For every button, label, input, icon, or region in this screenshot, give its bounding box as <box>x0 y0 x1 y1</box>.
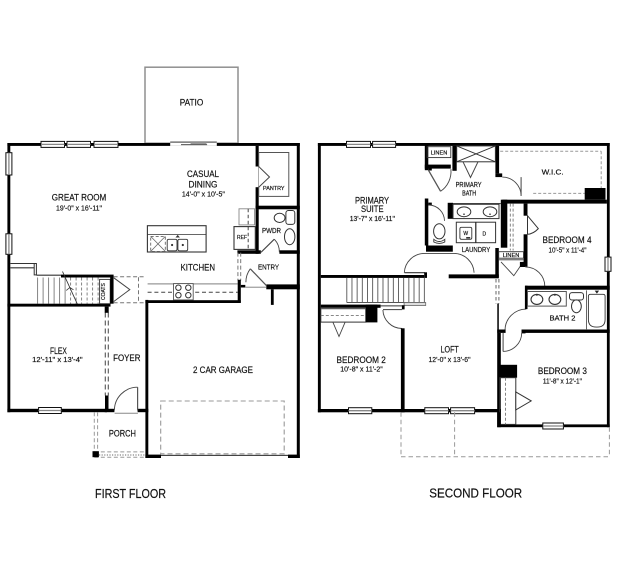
svg-text:BEDROOM 4: BEDROOM 4 <box>543 235 592 245</box>
svg-text:LINEN: LINEN <box>503 253 520 259</box>
svg-text:FIRST FLOOR: FIRST FLOOR <box>95 487 166 501</box>
svg-text:LINEN: LINEN <box>431 150 448 156</box>
svg-text:10'-5" x 11'-4": 10'-5" x 11'-4" <box>549 245 587 254</box>
svg-text:KITCHEN: KITCHEN <box>181 262 216 272</box>
svg-text:13'-7" x 16'-11": 13'-7" x 16'-11" <box>350 214 395 223</box>
svg-text:SUITE: SUITE <box>361 204 384 214</box>
svg-text:BATH: BATH <box>462 191 476 198</box>
svg-text:12'-11" x 13'-4": 12'-11" x 13'-4" <box>32 355 83 364</box>
svg-text:12'-0" x 13'-6": 12'-0" x 13'-6" <box>429 355 471 364</box>
svg-text:DINING: DINING <box>189 179 218 189</box>
svg-text:FOYER: FOYER <box>113 353 141 363</box>
svg-text:PANTRY: PANTRY <box>263 186 285 192</box>
svg-text:PWDR: PWDR <box>262 228 281 235</box>
svg-text:GREAT ROOM: GREAT ROOM <box>52 192 107 202</box>
svg-text:W.I.C.: W.I.C. <box>542 169 564 176</box>
svg-text:REF: REF <box>237 235 247 241</box>
svg-text:SECOND FLOOR: SECOND FLOOR <box>429 487 522 501</box>
svg-text:11'-8" x 12'-1": 11'-8" x 12'-1" <box>543 377 582 386</box>
svg-text:2 CAR GARAGE: 2 CAR GARAGE <box>193 365 253 375</box>
svg-text:LOFT: LOFT <box>441 344 460 354</box>
svg-text:BATH 2: BATH 2 <box>550 316 576 323</box>
svg-text:ENTRY: ENTRY <box>258 262 279 271</box>
svg-text:14'-0" x 10'-5": 14'-0" x 10'-5" <box>182 189 225 198</box>
svg-text:CASUAL: CASUAL <box>187 169 219 179</box>
svg-text:PATIO: PATIO <box>180 98 204 108</box>
svg-text:LAUNDRY: LAUNDRY <box>462 247 491 254</box>
svg-text:10'-8" x 11'-2": 10'-8" x 11'-2" <box>340 365 383 374</box>
svg-text:PORCH: PORCH <box>109 428 136 438</box>
svg-text:W: W <box>463 231 468 237</box>
svg-text:BEDROOM 2: BEDROOM 2 <box>337 355 386 365</box>
svg-text:19'-0" x 16'-11": 19'-0" x 16'-11" <box>56 204 102 213</box>
svg-text:COATS: COATS <box>101 283 107 301</box>
svg-text:PRIMARY: PRIMARY <box>456 182 482 189</box>
svg-text:D: D <box>482 231 486 237</box>
svg-text:BEDROOM 3: BEDROOM 3 <box>538 366 587 376</box>
